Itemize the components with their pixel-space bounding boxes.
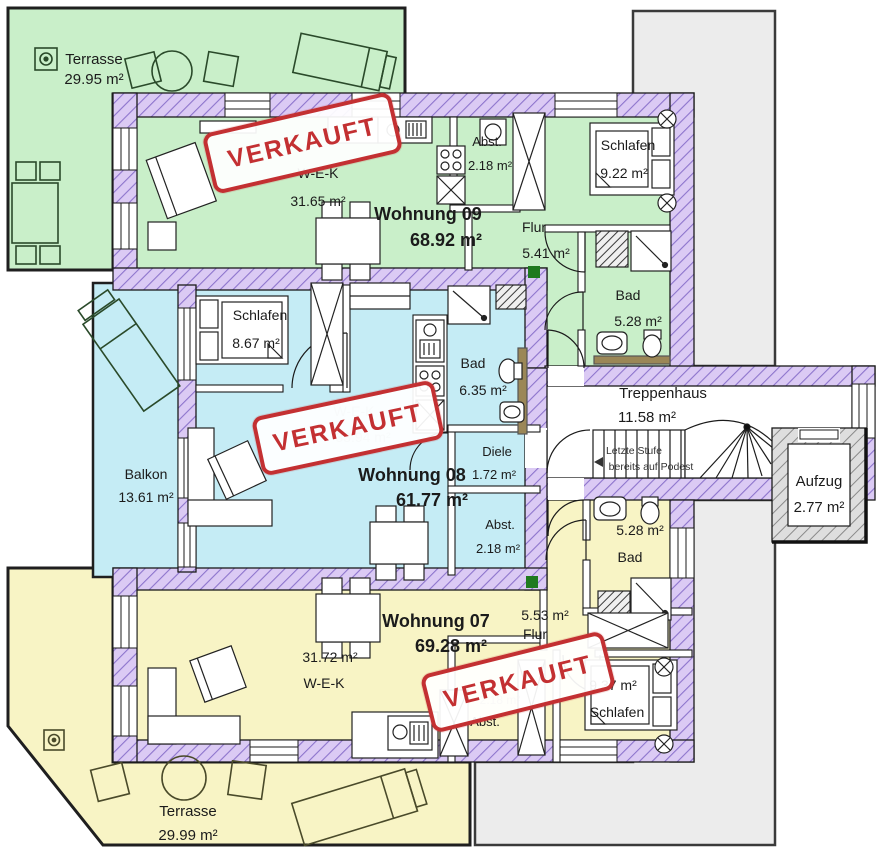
closet-icon bbox=[350, 283, 410, 309]
label-balkon-area: 13.61 m² bbox=[118, 489, 174, 505]
label-bad08: Bad bbox=[461, 355, 486, 371]
label-wohnung07-title: Wohnung 07 bbox=[382, 611, 490, 631]
vent-icon bbox=[655, 735, 673, 753]
label-wek07-area: 31.72 m² bbox=[302, 649, 358, 665]
label-schlafen08: Schlafen bbox=[233, 307, 287, 323]
toilet-icon bbox=[499, 359, 522, 383]
label-terrasse-sued-area: 29.99 m² bbox=[158, 827, 217, 844]
label-balkon: Balkon bbox=[125, 466, 168, 482]
label-abst08: Abst. bbox=[485, 517, 515, 532]
wardrobe-icon bbox=[311, 283, 343, 385]
label-bad07-area: 5.28 m² bbox=[616, 522, 664, 538]
label-flur09-area: 5.41 m² bbox=[522, 245, 570, 261]
label-stair-note2: bereits auf Podest bbox=[609, 461, 694, 473]
label-schlafen09: Schlafen bbox=[601, 137, 655, 153]
marker-square bbox=[528, 266, 540, 278]
vent-icon bbox=[658, 110, 676, 128]
shelf bbox=[594, 356, 670, 364]
side-table bbox=[148, 222, 176, 250]
label-flur07-area: 5.53 m² bbox=[521, 607, 569, 623]
kitchen-sink-icon bbox=[416, 320, 444, 362]
wardrobe-icon bbox=[513, 113, 545, 210]
label-stair-note1: Letzte Stufe bbox=[606, 445, 662, 457]
label-schlafen07: Schlafen bbox=[590, 704, 644, 720]
label-flur07: Flur bbox=[523, 626, 547, 642]
vent-icon bbox=[655, 658, 673, 676]
label-wohnung09-area: 68.92 m² bbox=[410, 230, 482, 250]
label-bad09: Bad bbox=[616, 287, 641, 303]
bed-icon bbox=[590, 123, 674, 195]
shower-icon bbox=[631, 231, 671, 271]
toilet-icon bbox=[641, 497, 659, 524]
label-diele08: Diele bbox=[482, 444, 512, 459]
label-abst08-area: 2.18 m² bbox=[476, 541, 521, 556]
shaft-icon bbox=[596, 231, 628, 267]
label-flur09: Flur bbox=[522, 219, 546, 235]
label-bad08-area: 6.35 m² bbox=[459, 382, 507, 398]
marker-square bbox=[526, 576, 538, 588]
label-diele08-area: 1.72 m² bbox=[472, 467, 517, 482]
label-aufzug-area: 2.77 m² bbox=[794, 499, 845, 516]
label-abst09-area: 2.18 m² bbox=[468, 158, 513, 173]
cabinet-icon bbox=[437, 176, 465, 204]
sink-icon bbox=[597, 332, 627, 354]
label-bad07: Bad bbox=[618, 549, 643, 565]
label-wek07: W-E-K bbox=[304, 675, 346, 691]
floorplan-page: Terrasse 29.95 m² W-E-K 31.65 m² Wohnung… bbox=[0, 0, 880, 862]
label-treppenhaus: Treppenhaus bbox=[619, 385, 707, 402]
label-aufzug: Aufzug bbox=[796, 473, 843, 490]
label-bad09-area: 5.28 m² bbox=[614, 313, 662, 329]
label-terrasse-nord: Terrasse bbox=[65, 51, 123, 68]
label-terrasse-nord-area: 29.95 m² bbox=[64, 71, 123, 88]
label-wek09-area: 31.65 m² bbox=[290, 193, 346, 209]
sink-icon bbox=[500, 402, 524, 422]
shaft-icon bbox=[496, 285, 526, 309]
label-schlafen08-area: 8.67 m² bbox=[232, 335, 280, 351]
toilet-icon bbox=[643, 330, 661, 357]
kitchen-sink-icon bbox=[388, 716, 432, 750]
stove-icon bbox=[437, 146, 465, 174]
label-treppenhaus-area: 11.58 m² bbox=[618, 409, 676, 426]
label-wohnung09-title: Wohnung 09 bbox=[374, 204, 482, 224]
vent-icon bbox=[658, 194, 676, 212]
shower-icon bbox=[448, 286, 490, 324]
label-wohnung07-area: 69.28 m² bbox=[415, 636, 487, 656]
label-schlafen09-area: 9.22 m² bbox=[600, 165, 648, 181]
label-wohnung08-area: 61.77 m² bbox=[396, 490, 468, 510]
label-terrasse-sued: Terrasse bbox=[159, 803, 217, 820]
sink-icon bbox=[594, 497, 626, 520]
label-wohnung08-title: Wohnung 08 bbox=[358, 465, 466, 485]
label-abst09: Abst. bbox=[472, 134, 502, 149]
